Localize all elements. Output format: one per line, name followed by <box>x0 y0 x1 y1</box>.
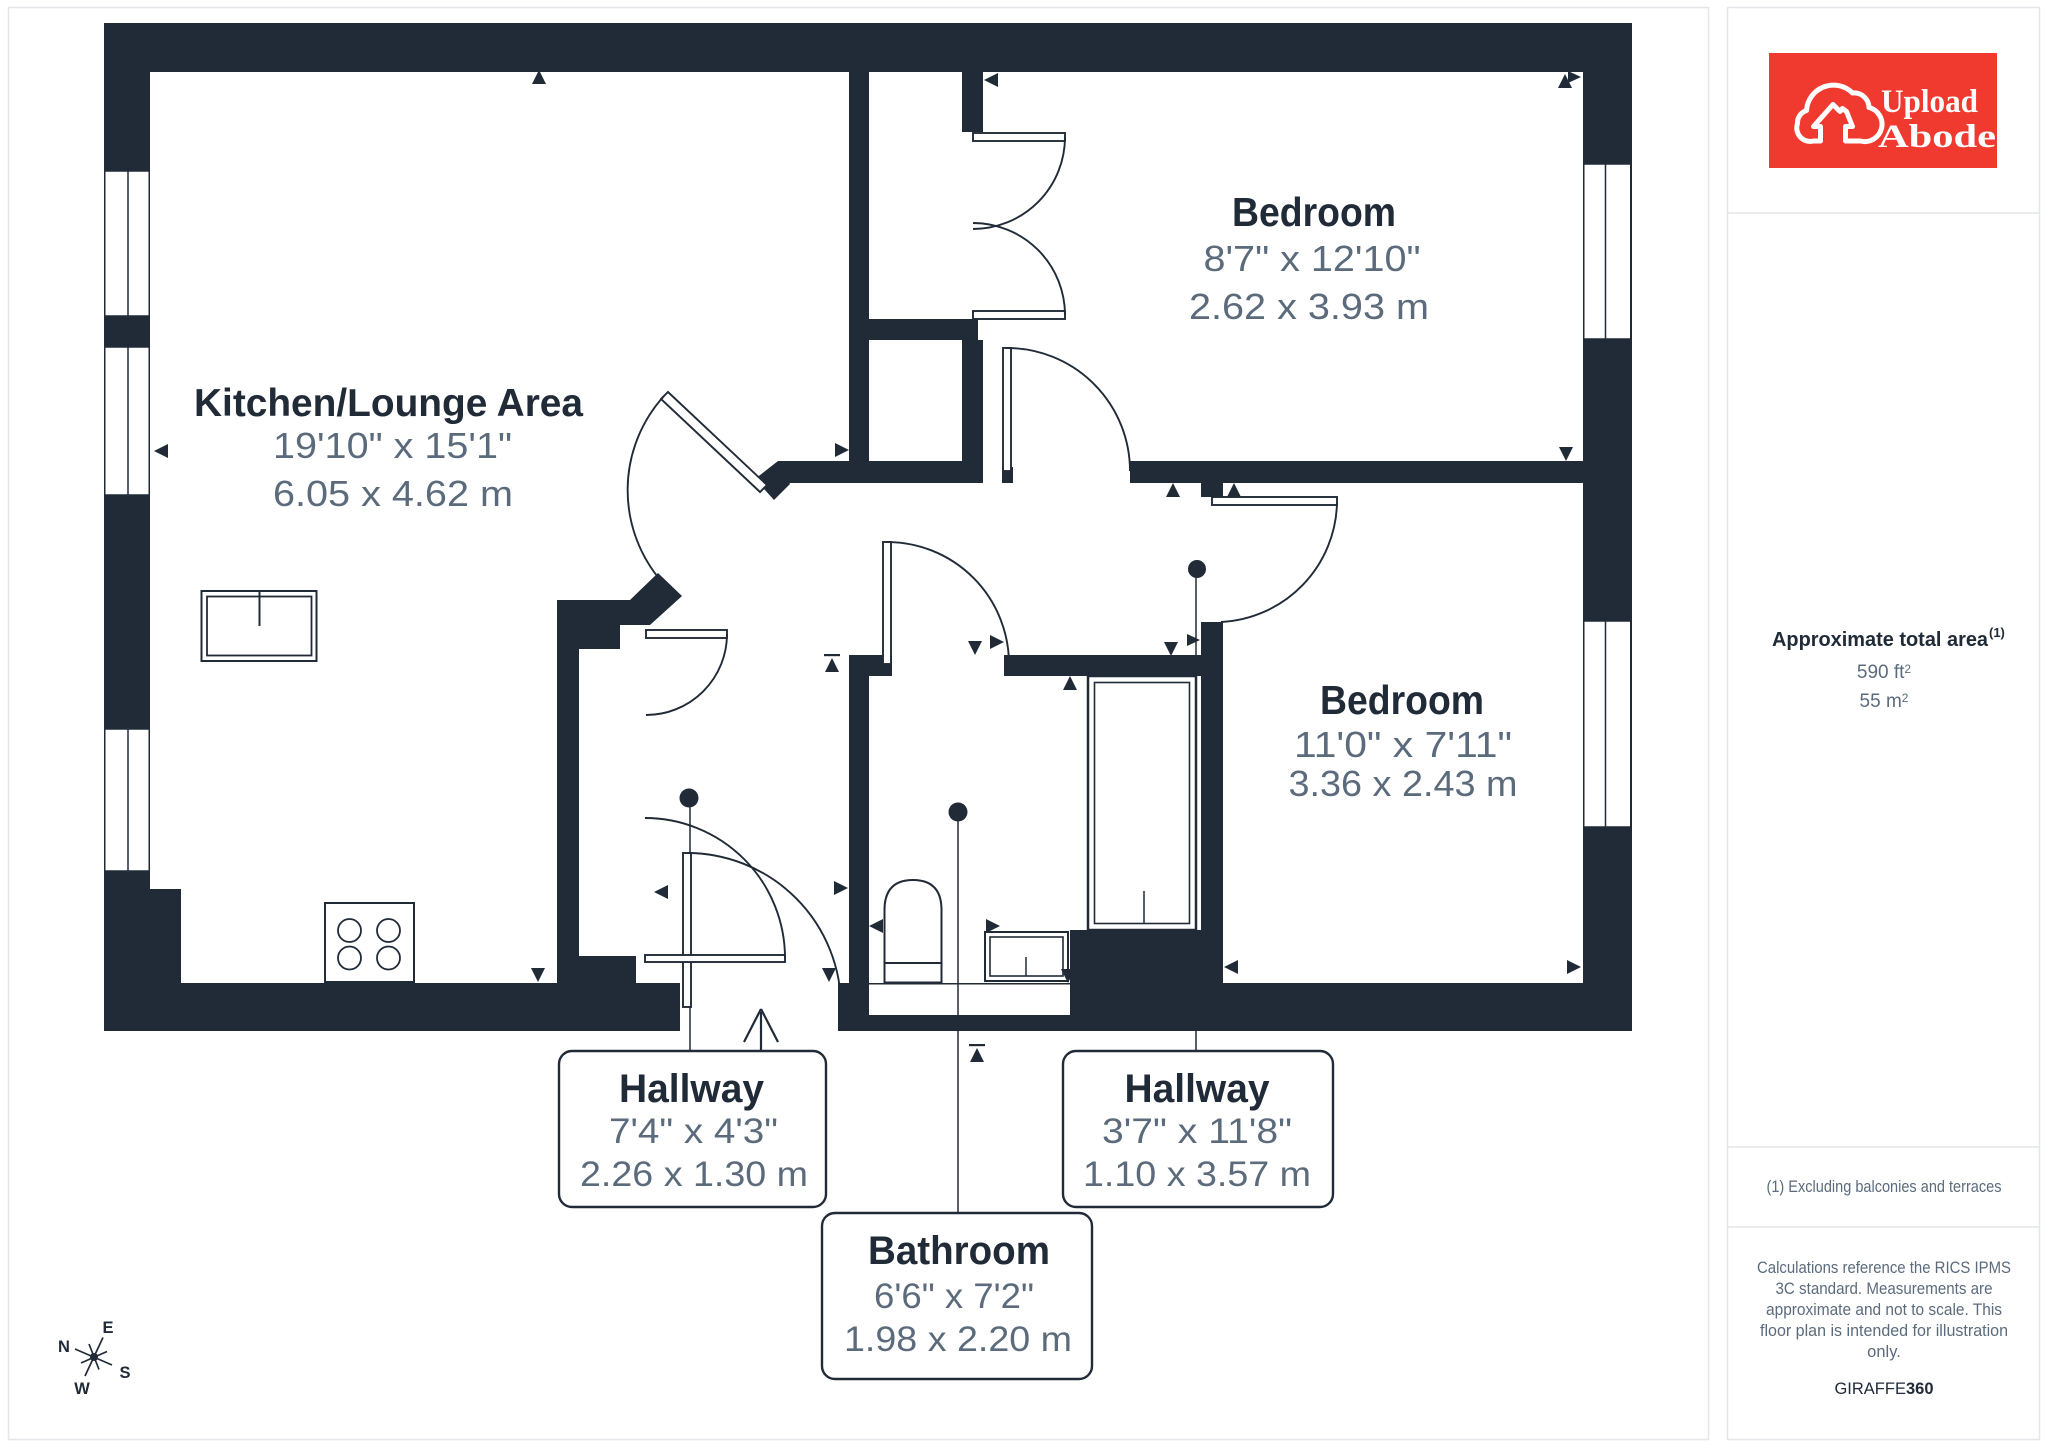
svg-text:S: S <box>119 1364 130 1382</box>
svg-text:3.36 x 2.43 m: 3.36 x 2.43 m <box>1289 763 1518 804</box>
svg-text:1.98 x 2.20 m: 1.98 x 2.20 m <box>844 1320 1072 1359</box>
svg-text:approximate and not to scale.: approximate and not to scale. This <box>1766 1301 2002 1319</box>
svg-text:590 ft2: 590 ft2 <box>1857 662 1912 683</box>
svg-text:(1): (1) <box>1989 625 2005 640</box>
svg-text:Bathroom: Bathroom <box>868 1229 1050 1273</box>
svg-text:W: W <box>74 1380 90 1398</box>
svg-text:E: E <box>102 1319 113 1337</box>
svg-text:6.05 x 4.62 m: 6.05 x 4.62 m <box>273 473 513 514</box>
svg-text:GIRAFFE360: GIRAFFE360 <box>1834 1380 1933 1398</box>
svg-text:only.: only. <box>1867 1343 1901 1361</box>
svg-text:Calculations reference the RIC: Calculations reference the RICS IPMS <box>1757 1259 2011 1277</box>
svg-text:Hallway: Hallway <box>619 1067 765 1111</box>
svg-text:Hallway: Hallway <box>1125 1067 1271 1111</box>
svg-text:(1) Excluding balconies and te: (1) Excluding balconies and terraces <box>1767 1178 2002 1196</box>
svg-text:2.62 x 3.93 m: 2.62 x 3.93 m <box>1189 286 1429 327</box>
svg-text:8'7" x 12'10": 8'7" x 12'10" <box>1204 238 1421 279</box>
svg-text:Upload: Upload <box>1881 84 1978 120</box>
svg-text:Kitchen/Lounge Area: Kitchen/Lounge Area <box>194 382 583 425</box>
svg-text:19'10" x 15'1": 19'10" x 15'1" <box>273 425 512 466</box>
svg-text:6'6" x 7'2": 6'6" x 7'2" <box>874 1277 1034 1316</box>
svg-text:55 m2: 55 m2 <box>1860 691 1909 712</box>
svg-text:Abode: Abode <box>1878 119 1996 155</box>
svg-text:7'4" x 4'3": 7'4" x 4'3" <box>609 1112 778 1151</box>
svg-text:floor plan is intended for ill: floor plan is intended for illustration <box>1760 1322 2008 1340</box>
svg-text:11'0" x 7'11": 11'0" x 7'11" <box>1294 724 1512 765</box>
svg-text:2.26 x 1.30 m: 2.26 x 1.30 m <box>580 1155 808 1194</box>
svg-text:Approximate total area: Approximate total area <box>1772 628 1989 651</box>
svg-text:Bedroom: Bedroom <box>1320 677 1484 723</box>
svg-text:3C standard. Measurements are: 3C standard. Measurements are <box>1776 1280 1993 1298</box>
svg-text:Bedroom: Bedroom <box>1232 189 1396 235</box>
svg-text:1.10 x 3.57 m: 1.10 x 3.57 m <box>1083 1155 1311 1194</box>
svg-text:N: N <box>58 1338 70 1356</box>
svg-text:3'7" x 11'8": 3'7" x 11'8" <box>1102 1112 1292 1151</box>
